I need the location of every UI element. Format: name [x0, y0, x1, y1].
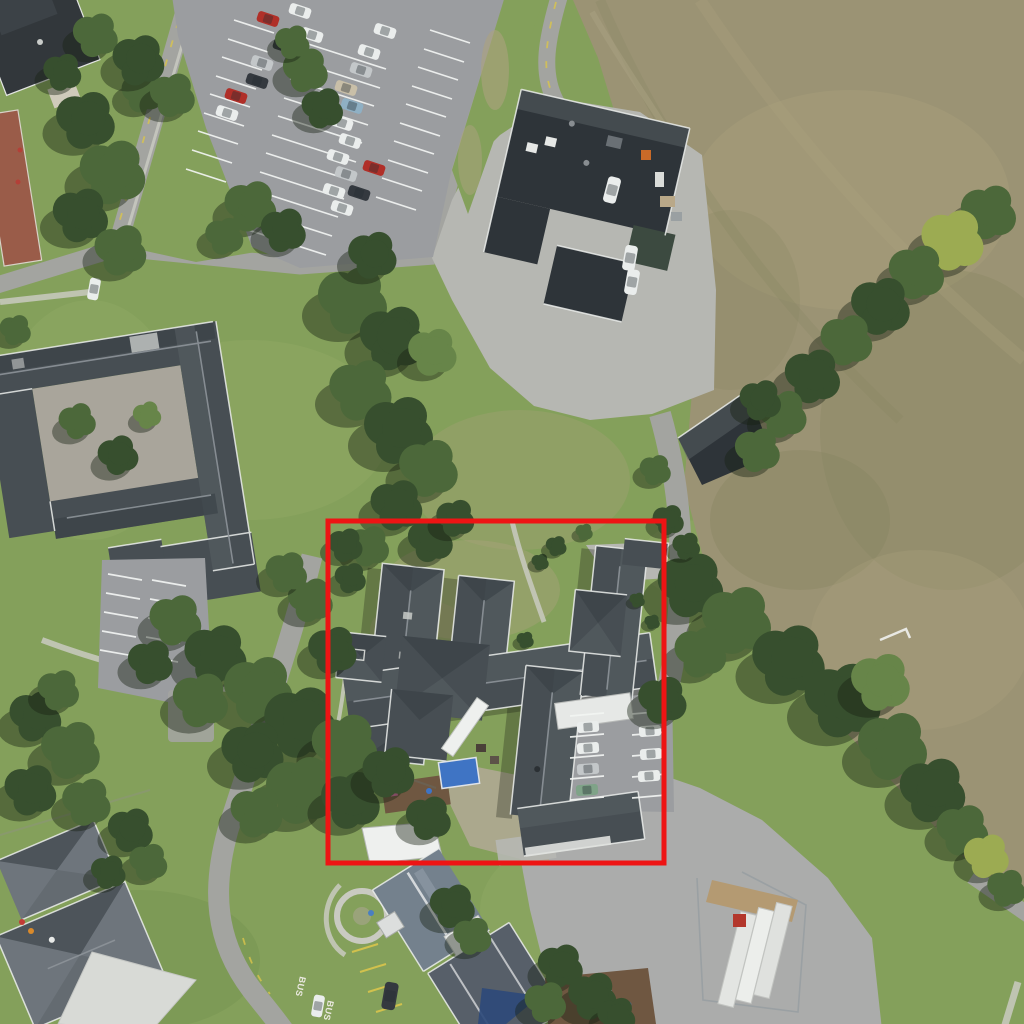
car-icon [577, 742, 600, 755]
car-icon [638, 770, 661, 783]
car-icon [640, 748, 663, 761]
blue-tarp-shed [438, 757, 479, 788]
picnic-table [490, 756, 499, 764]
east-gable [569, 589, 627, 656]
car-icon [577, 721, 600, 734]
machinery [641, 150, 651, 160]
car-icon [577, 763, 600, 776]
car-icon [576, 784, 599, 797]
picnic-table [476, 744, 486, 752]
aerial-photo: Aerial orthophoto of a school campus wit… [0, 0, 1024, 1024]
red-container [733, 914, 746, 927]
aerial-photo-canvas: Aerial orthophoto of a school campus wit… [0, 0, 1024, 1024]
